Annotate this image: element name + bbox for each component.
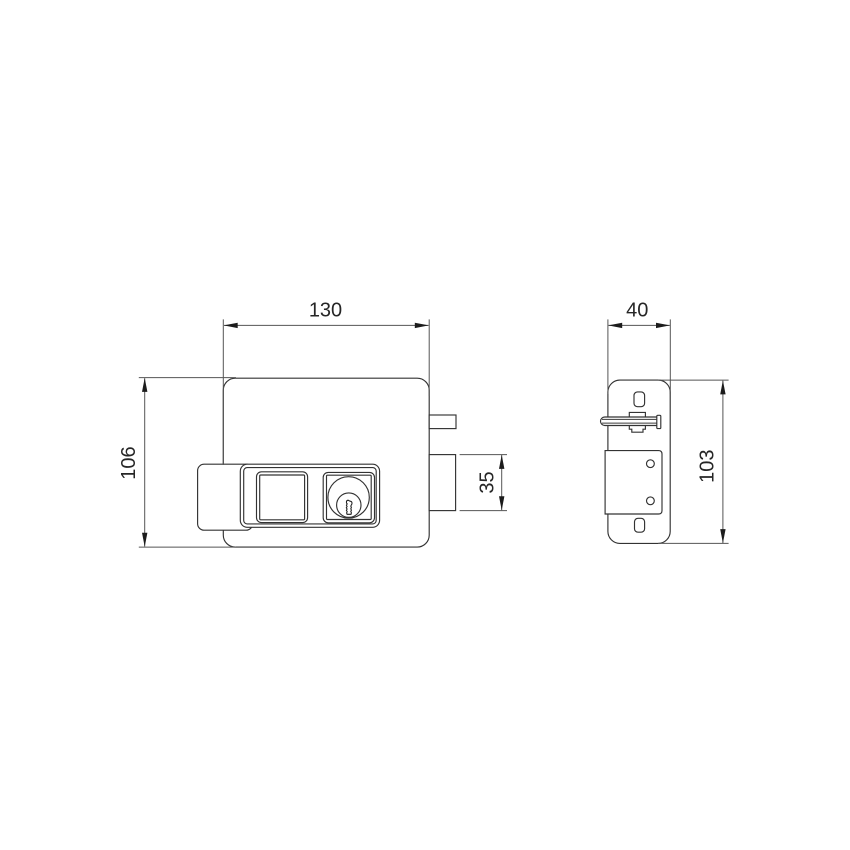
svg-text:130: 130 (309, 300, 342, 322)
svg-text:106: 106 (118, 446, 140, 479)
svg-text:103: 103 (697, 450, 719, 483)
svg-text:40: 40 (626, 300, 648, 322)
svg-text:35: 35 (477, 471, 499, 493)
